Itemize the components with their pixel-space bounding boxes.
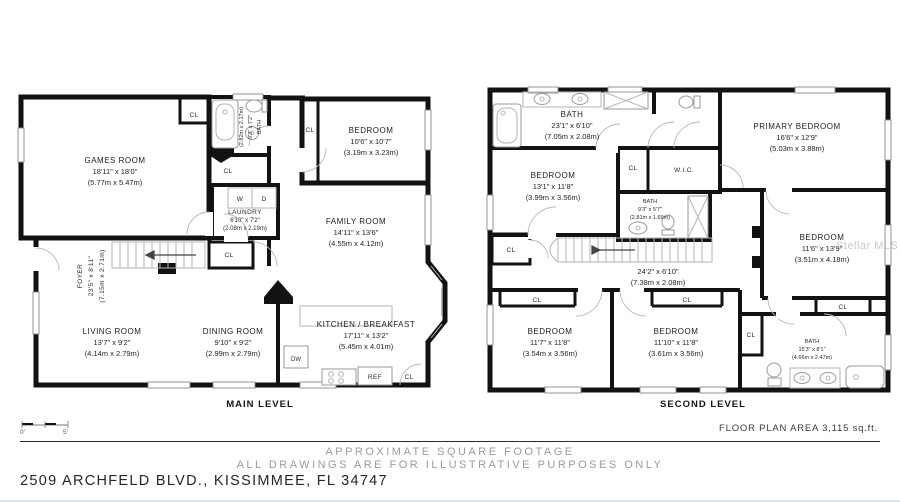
bath-lower-right-imperial: 15'3" x 8'1"	[798, 347, 825, 353]
closet-label: CL	[532, 297, 541, 304]
main-bath-name: BATH	[257, 120, 263, 134]
scale-end-label: 5'	[63, 429, 68, 436]
living-room-imperial: 13'7" x 9'2"	[94, 338, 131, 347]
main-bedroom-name: BEDROOM	[349, 126, 394, 135]
main-bedroom-metric: (3.19m x 3.23m)	[344, 148, 399, 157]
foyer-label: FOYER 23'5" x 8'11" (7.15m x 2.71m)	[77, 249, 106, 302]
bath-middle-name: BATH	[643, 199, 657, 205]
wic-label: W.I.C.	[674, 167, 694, 174]
laundry-imperial: 6'10" x 7'2"	[230, 218, 260, 224]
scale-start-label: 0'	[20, 429, 25, 436]
primary-bedroom-imperial: 16'6" x 12'9"	[776, 133, 817, 142]
closet-label: CL	[224, 252, 233, 259]
bedroom-upper-left-imperial: 13'1" x 11'8"	[533, 182, 574, 191]
games-room-imperial: 18'11" x 18'0"	[93, 167, 138, 176]
bedroom-upper-left-name: BEDROOM	[531, 171, 576, 180]
second-level-title: SECOND LEVEL	[623, 399, 783, 410]
fridge-label: REF	[368, 374, 382, 381]
bedroom-lower-middle-name: BEDROOM	[654, 327, 699, 336]
laundry-name: LAUNDRY	[228, 209, 262, 216]
bath-middle-imperial: 9'3" x 5'7"	[638, 207, 662, 213]
closet-label: CL	[628, 165, 637, 172]
property-address: 2509 ARCHFELD BLVD., KISSIMMEE, FL 34747	[20, 473, 388, 489]
kitchen-name: KITCHEN / BREAKFAST	[317, 320, 415, 329]
closet-label: CL	[305, 127, 314, 134]
main-bedroom-imperial: 10'6" x 10'7"	[350, 137, 391, 146]
bedroom-lower-middle-imperial: 11'10" x 11'8"	[654, 338, 699, 347]
primary-bedroom-name: PRIMARY BEDROOM	[753, 122, 840, 131]
foyer-imperial: 23'5" x 8'11"	[88, 256, 95, 297]
main-level-plan: GAMES ROOM 18'11" x 18'0" (5.77m x 5.47m…	[18, 94, 445, 388]
bath-lower-right-name: BATH	[805, 339, 819, 345]
closet-label: CL	[223, 168, 232, 175]
closet-label: CL	[682, 297, 691, 304]
family-room-name: FAMILY ROOM	[326, 217, 386, 226]
main-bath-label: (2.82m x 2.17m) 9'3" x 7'2" BATH	[239, 107, 263, 147]
bath-lower-right-metric: (4.66m x 2.47m)	[792, 355, 832, 361]
bedroom-lower-left-metric: (3.54m x 3.56m)	[523, 349, 578, 358]
dining-room-imperial: 9'10" x 9'2"	[215, 338, 252, 347]
footer-divider	[20, 441, 880, 442]
main-bath-imperial: 9'3" x 7'2"	[248, 115, 254, 139]
disclaimer-line-2: ALL DRAWINGS ARE FOR ILLUSTRATIVE PURPOS…	[0, 459, 900, 471]
dining-room-name: DINING ROOM	[203, 327, 264, 336]
watermark: Stellar MLS	[836, 240, 898, 252]
washer-label: W	[237, 196, 244, 203]
floor-plan-area-label: FLOOR PLAN AREA 3,115 sq.ft.	[719, 423, 878, 434]
games-room-name: GAMES ROOM	[84, 156, 145, 165]
closet-label: CL	[838, 304, 847, 311]
primary-bedroom-metric: (5.03m x 3.88m)	[770, 144, 825, 153]
dining-room-metric: (2.99m x 2.79m)	[206, 349, 261, 358]
second-level-plan: BATH 23'1" x 6'10" (7.05m x 2.08m) BEDRO…	[487, 87, 891, 393]
foyer-metric: (7.15m x 2.71m)	[99, 249, 106, 302]
kitchen-metric: (5.45m x 4.01m)	[339, 342, 394, 351]
bedroom-upper-left-metric: (3.99m x 3.56m)	[526, 193, 581, 202]
floor-plan-page: GAMES ROOM 18'11" x 18'0" (5.77m x 5.47m…	[0, 0, 900, 502]
dryer-label: D	[261, 196, 266, 203]
family-room-metric: (4.55m x 4.12m)	[329, 239, 384, 248]
foyer-name: FOYER	[77, 264, 84, 288]
bath-middle-metric: (2.81m x 1.69m)	[630, 215, 670, 221]
main-bath-metric: (2.82m x 2.17m)	[239, 107, 245, 147]
games-room-metric: (5.77m x 5.47m)	[88, 178, 143, 187]
bedroom-lower-left-name: BEDROOM	[528, 327, 573, 336]
bedroom-lower-left-imperial: 11'7" x 11'8"	[530, 338, 570, 347]
living-room-name: LIVING ROOM	[83, 327, 142, 336]
second-bath-main-name: BATH	[561, 110, 584, 119]
family-room-imperial: 14'11" x 13'6"	[334, 228, 379, 237]
living-room-metric: (4.14m x 2.79m)	[85, 349, 140, 358]
dishwasher-label: DW	[291, 357, 301, 363]
closet-label: CL	[404, 374, 413, 381]
hall-imperial: 24'2" x 6'10"	[637, 267, 678, 276]
second-bath-lower-fixtures	[767, 363, 884, 388]
closet-label: CL	[746, 332, 755, 339]
scale-bar	[22, 421, 68, 428]
closet-label: CL	[189, 112, 198, 119]
kitchen-imperial: 17'11" x 13'2"	[344, 331, 389, 340]
main-level-title: MAIN LEVEL	[180, 399, 340, 410]
second-bath-main-imperial: 23'1" x 6'10"	[551, 121, 592, 130]
second-bath-main-metric: (7.05m x 2.08m)	[545, 132, 600, 141]
bedroom-lower-middle-metric: (3.61m x 3.56m)	[649, 349, 704, 358]
laundry-metric: (2.08m x 2.19m)	[223, 226, 267, 232]
closet-label: CL	[506, 247, 515, 254]
bedroom-right-metric: (3.51m x 4.18m)	[795, 255, 850, 264]
hall-metric: (7.38m x 2.08m)	[631, 278, 686, 287]
disclaimer-line-1: APPROXIMATE SQUARE FOOTAGE	[0, 446, 900, 458]
